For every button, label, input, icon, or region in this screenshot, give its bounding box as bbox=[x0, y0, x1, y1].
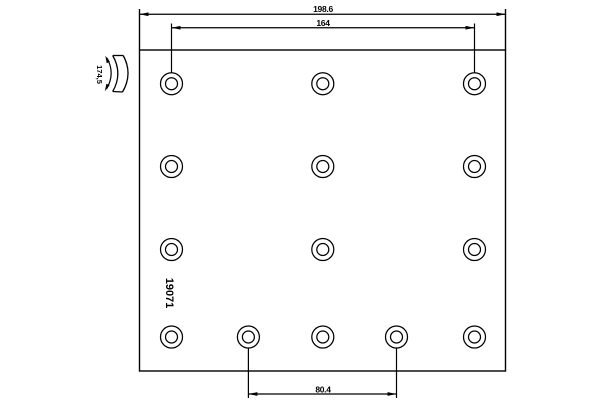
svg-text:198.6: 198.6 bbox=[313, 4, 333, 14]
svg-text:164: 164 bbox=[316, 18, 330, 28]
svg-text:19071: 19071 bbox=[163, 278, 175, 309]
svg-text:174,5: 174,5 bbox=[95, 65, 104, 84]
svg-text:80.4: 80.4 bbox=[315, 385, 331, 395]
